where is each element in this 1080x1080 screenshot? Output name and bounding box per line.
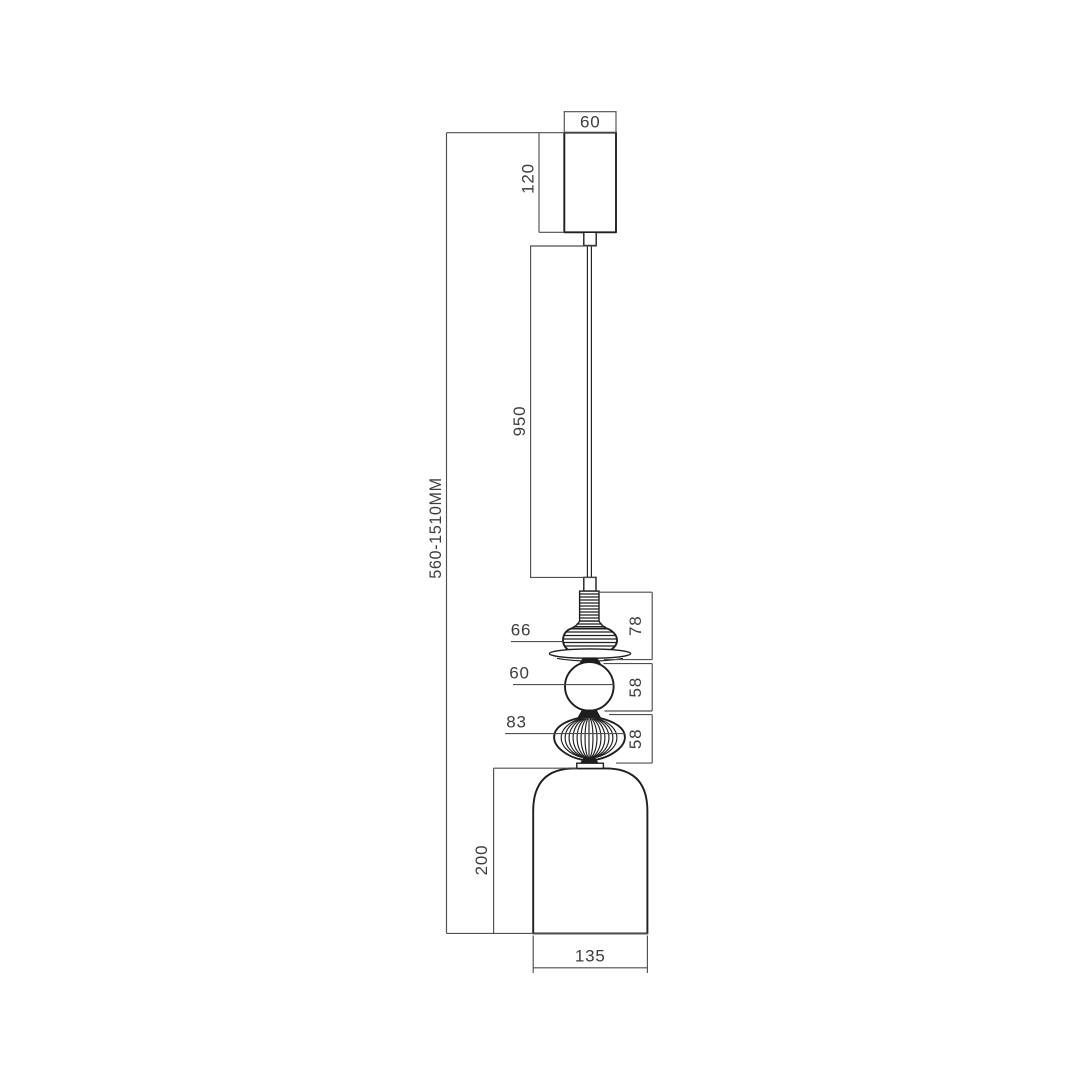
label-shade-width: 135 (575, 947, 606, 966)
ribbed-diffuser (554, 717, 625, 759)
label-sphere-width: 60 (509, 664, 530, 683)
label-finial-height: 78 (626, 616, 645, 637)
shade-outline (533, 768, 647, 933)
label-diffuser-width: 83 (506, 713, 527, 732)
threaded-stem (580, 591, 599, 621)
canopy-outline (564, 133, 616, 233)
shade-neck-plate (577, 763, 604, 768)
canopy-cord-connector (584, 232, 596, 245)
label-shade-height: 200 (472, 845, 491, 876)
label-diffuser-height: 58 (626, 729, 645, 750)
sphere-element (565, 662, 614, 711)
stem-cord-connector (584, 577, 596, 591)
label-sphere-height: 58 (626, 677, 645, 698)
pendant-lamp-dimension-drawing: 60 120 950 560-1510MM 66 78 60 58 83 58 … (0, 0, 1080, 1080)
label-canopy-height: 120 (519, 163, 538, 194)
label-cord-length: 950 (510, 406, 529, 437)
drawing-canvas: 60 120 950 560-1510MM 66 78 60 58 83 58 … (0, 0, 1080, 1080)
label-finial-width: 66 (511, 621, 532, 640)
label-canopy-width: 60 (580, 113, 601, 132)
label-overall-height: 560-1510MM (427, 477, 445, 578)
